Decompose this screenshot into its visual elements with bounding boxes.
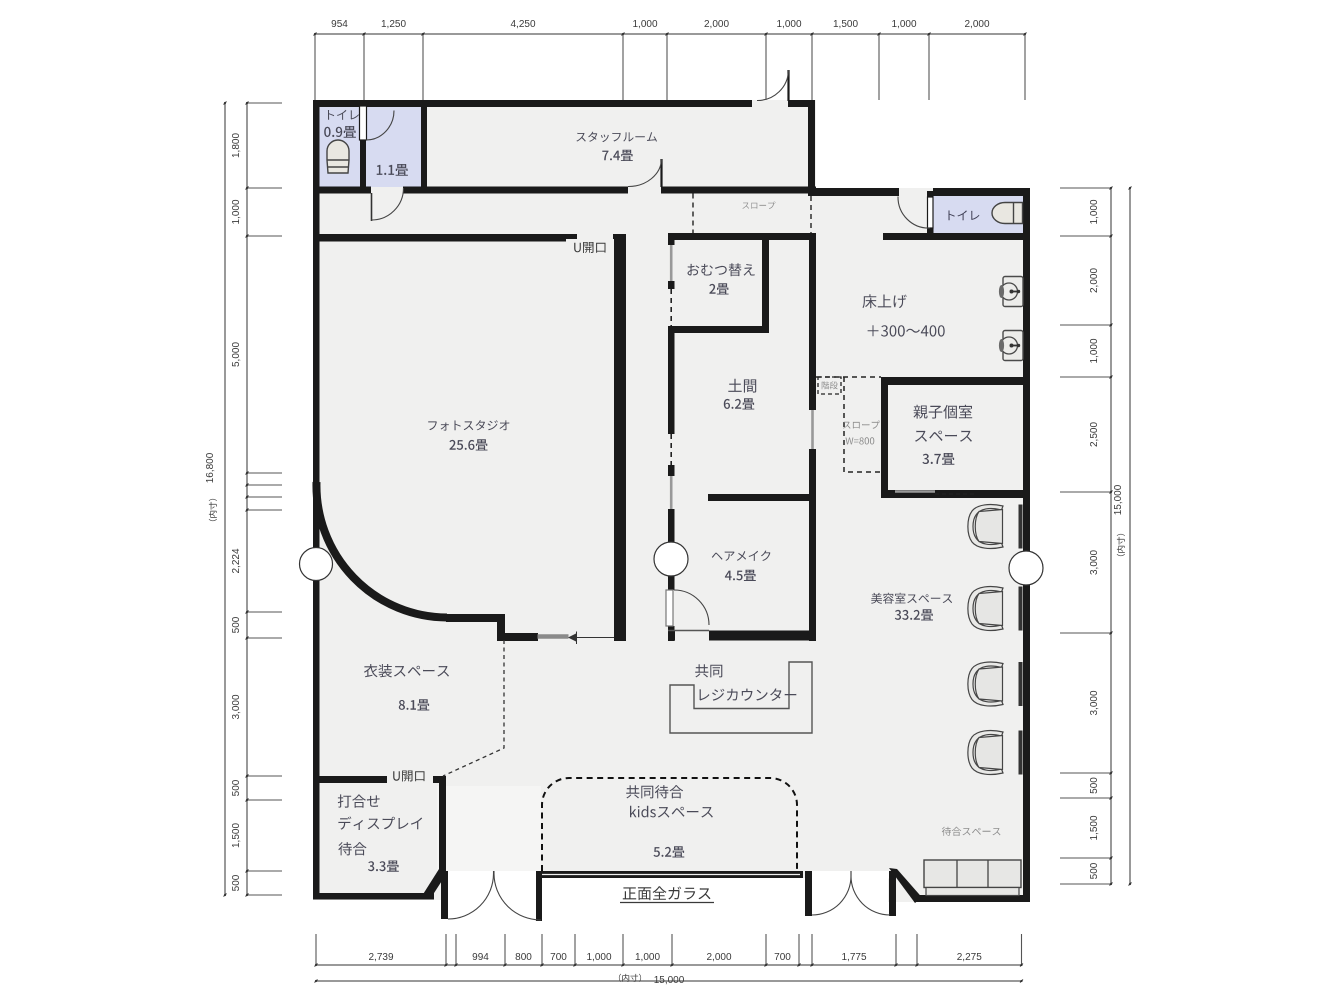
svg-text:700: 700 (774, 952, 791, 963)
svg-text:2,000: 2,000 (1089, 268, 1100, 293)
svg-text:1,500: 1,500 (1089, 815, 1100, 840)
svg-text:500: 500 (1089, 862, 1100, 879)
svg-text:2,275: 2,275 (957, 952, 982, 963)
svg-text:994: 994 (472, 952, 489, 963)
svg-text:1,000: 1,000 (891, 19, 916, 30)
svg-text:700: 700 (550, 952, 567, 963)
svg-text:2,000: 2,000 (704, 19, 729, 30)
svg-text:1,500: 1,500 (231, 823, 242, 848)
svg-text:500: 500 (231, 616, 242, 633)
svg-text:1,250: 1,250 (381, 19, 406, 30)
svg-text:500: 500 (231, 874, 242, 891)
svg-text:1,000: 1,000 (1089, 199, 1100, 224)
svg-text:500: 500 (231, 779, 242, 796)
svg-text:1,000: 1,000 (632, 19, 657, 30)
svg-text:954: 954 (331, 19, 348, 30)
svg-text:1,800: 1,800 (231, 133, 242, 158)
svg-text:3,000: 3,000 (231, 694, 242, 719)
svg-text:1,000: 1,000 (776, 19, 801, 30)
svg-text:5,000: 5,000 (231, 342, 242, 367)
svg-text:15,000: 15,000 (1113, 484, 1124, 515)
svg-text:3,000: 3,000 (1089, 690, 1100, 715)
svg-text:1,000: 1,000 (635, 952, 660, 963)
svg-text:3,000: 3,000 (1089, 550, 1100, 575)
svg-text:1,000: 1,000 (586, 952, 611, 963)
svg-text:1,775: 1,775 (841, 952, 866, 963)
svg-text:1,000: 1,000 (231, 199, 242, 224)
svg-text:500: 500 (1089, 777, 1100, 794)
svg-text:2,500: 2,500 (1089, 422, 1100, 447)
svg-text:15,000: 15,000 (654, 975, 685, 986)
svg-text:800: 800 (515, 952, 532, 963)
svg-text:2,739: 2,739 (368, 952, 393, 963)
svg-text:1,000: 1,000 (1089, 338, 1100, 363)
svg-text:2,000: 2,000 (706, 952, 731, 963)
svg-text:2,000: 2,000 (964, 19, 989, 30)
svg-text:16,800: 16,800 (205, 452, 216, 483)
svg-text:2,224: 2,224 (231, 548, 242, 573)
svg-text:4,250: 4,250 (510, 19, 535, 30)
svg-text:1,500: 1,500 (833, 19, 858, 30)
